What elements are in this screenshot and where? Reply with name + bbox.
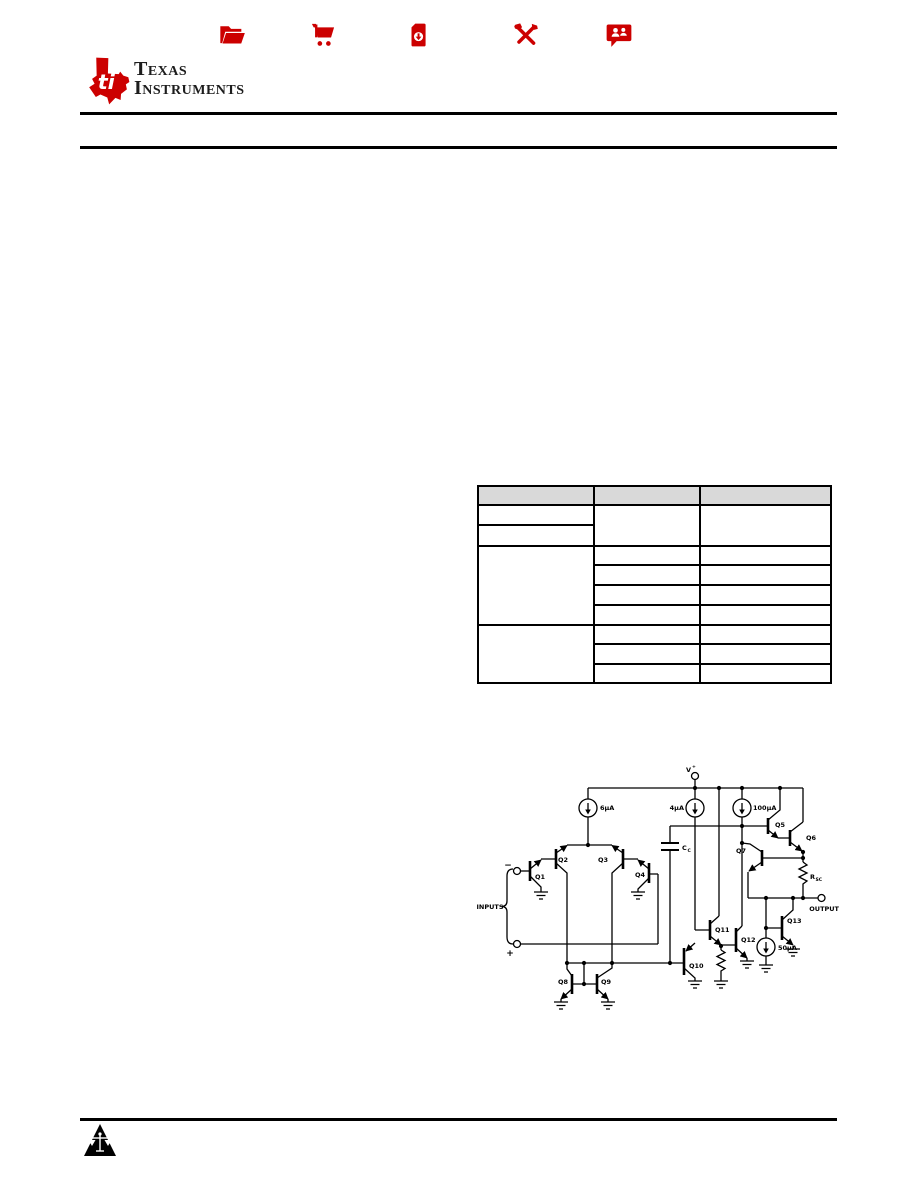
table-cell [700,625,831,644]
q7-label: Q7 [736,847,746,855]
table-cell [594,605,700,625]
ti-logo-texas-icon: ti [80,56,130,103]
rsc-label: R [810,873,815,881]
table-cell [594,664,700,683]
table-header-row [478,486,831,505]
table-cell [700,546,831,565]
table-header-cell [700,486,831,505]
scales-warning-triangle-icon [83,1123,117,1158]
compensation-capacitor [661,843,679,850]
current-50ua-label: 50µA [778,944,797,952]
table-cell [594,505,700,546]
table-row [478,625,831,644]
table-cell [478,525,594,546]
q4-label: Q4 [635,871,646,879]
logo-texas-text: Texas [134,59,245,79]
table-cell [700,505,831,546]
table-cell [700,664,831,683]
q6-label: Q6 [806,834,817,842]
table-cell [594,644,700,664]
equivalent-schematic-figure: V + 6µA 4µA 100µA Q1 [476,758,842,1020]
table-cell [700,585,831,605]
q9-label: Q9 [601,978,612,986]
table-row [478,546,831,565]
table-cell [594,625,700,644]
table-cell [594,546,700,565]
shopping-cart-icon[interactable] [309,21,337,49]
output-terminal [818,895,825,902]
short-circuit-resistor [799,862,807,898]
current-4ua-label: 4µA [670,804,684,812]
q8-label: Q8 [558,978,569,986]
rsc-sub-label: SC [816,877,823,883]
ti-logo-wordmark: Texas Instruments [134,59,245,98]
cc-sub-label: C [688,848,692,854]
table-cell [478,625,594,683]
datasheet-page: ti Texas Instruments [0,0,918,1188]
logo-instruments-text: Instruments [134,78,245,98]
table-header-cell [478,486,594,505]
inputs-label: INPUTS [477,903,504,911]
q11-label: Q11 [715,926,730,934]
vplus-sup-label: + [692,764,696,770]
document-download-icon[interactable] [405,21,431,49]
table-cell [700,605,831,625]
vplus-terminal: V + [686,764,699,780]
q13-label: Q13 [787,917,802,925]
footer-rule [80,1118,837,1121]
q10-label: Q10 [689,962,704,970]
q2-label: Q2 [558,856,568,864]
current-source-4ua [686,799,704,817]
inverting-input-terminal [514,868,521,875]
ti-logo-letters: ti [98,70,116,94]
header-rule-1 [80,112,837,115]
table-cell [478,546,594,625]
current-source-6ua [579,799,597,817]
ti-logo: ti Texas Instruments [80,56,310,106]
header-rule-2 [80,146,837,149]
current-source-50ua [757,938,775,956]
vplus-label: V [686,766,691,774]
table-cell [594,565,700,585]
table-cell [594,585,700,605]
table-cell [478,505,594,525]
cc-label: C [682,844,687,852]
noninverting-input-terminal [514,941,521,948]
output-label: OUTPUT [809,905,839,913]
table-row [478,505,831,525]
table-header-cell [594,486,700,505]
q3-label: Q3 [598,856,608,864]
current-6ua-label: 6µA [600,804,614,812]
table-cell [700,565,831,585]
q1-label: Q1 [535,873,546,881]
q12-label: Q12 [741,936,756,944]
plus-sign: + [506,949,514,959]
current-100ua-label: 100µA [753,804,776,812]
q5-label: Q5 [775,821,786,829]
spec-table [477,485,832,684]
q11-emitter-resistor [717,950,725,981]
current-source-100ua [733,799,751,817]
support-chat-icon[interactable] [605,21,633,49]
tools-icon[interactable] [512,21,540,49]
table-cell [700,644,831,664]
folder-open-icon[interactable] [218,21,246,49]
